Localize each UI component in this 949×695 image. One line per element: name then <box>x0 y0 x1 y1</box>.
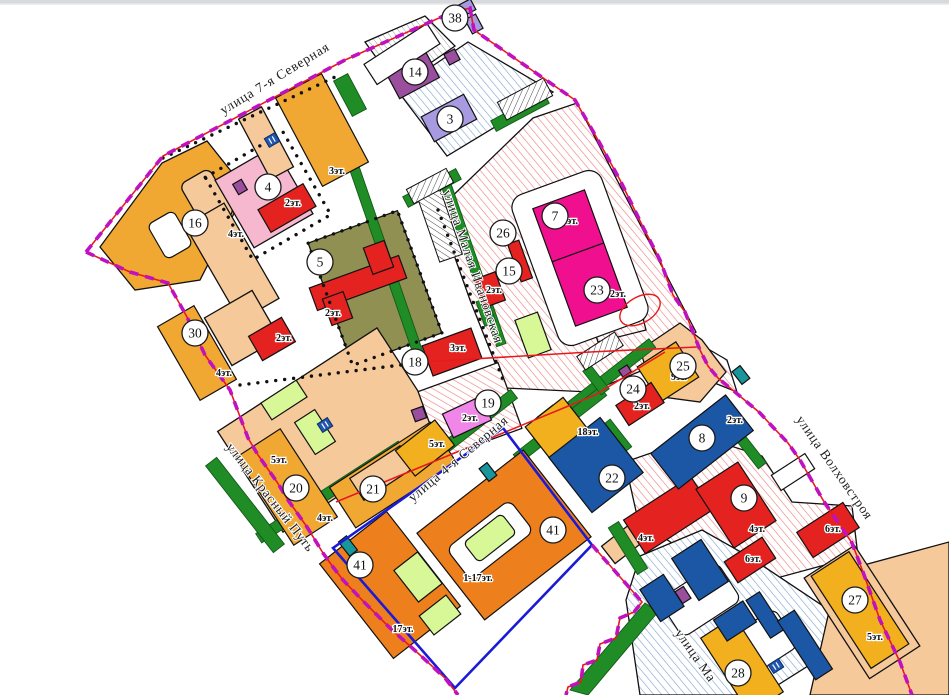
svg-text:38: 38 <box>448 11 462 26</box>
svg-text:41: 41 <box>353 558 367 573</box>
building-marker[interactable]: 23 <box>584 277 610 303</box>
building-marker[interactable]: 20 <box>283 475 309 501</box>
svg-text:24: 24 <box>626 382 640 397</box>
building-white-slab <box>771 454 814 491</box>
svg-text:26: 26 <box>496 226 510 241</box>
building-marker[interactable]: 27 <box>842 587 868 613</box>
building-marker[interactable]: 21 <box>360 476 386 502</box>
floor-count-label: 17эт. <box>393 624 414 635</box>
floor-count-label: 3эт. <box>450 343 466 354</box>
svg-text:18: 18 <box>408 355 422 370</box>
svg-text:21: 21 <box>366 482 380 497</box>
floor-count-label: 2эт. <box>325 308 341 319</box>
building-marker[interactable]: 28 <box>725 660 751 686</box>
top-edge <box>0 0 949 5</box>
building-marker[interactable]: 8 <box>689 425 715 451</box>
floor-count-label: 5эт. <box>867 632 883 643</box>
svg-text:27: 27 <box>848 593 862 608</box>
floor-count-label: 2эт. <box>727 415 743 426</box>
building-marker[interactable]: 9 <box>731 485 757 511</box>
floor-count-label: 2эт. <box>462 413 478 424</box>
building-marker[interactable]: 4 <box>255 174 281 200</box>
svg-text:3: 3 <box>447 112 454 127</box>
building-marker[interactable]: 22 <box>599 465 625 491</box>
building-marker[interactable]: 38 <box>442 5 468 31</box>
svg-text:8: 8 <box>699 431 706 446</box>
svg-text:16: 16 <box>188 216 202 231</box>
floor-count-label: 1-17эт. <box>463 573 493 584</box>
building-teal <box>732 366 750 385</box>
urban-plan-map: 3эт.2эт.4эт.2эт.2эт.4эт.2эт.2эт.2эт.3эт.… <box>0 0 949 695</box>
floor-count-label: 4эт. <box>317 513 333 524</box>
map-canvas: 3эт.2эт.4эт.2эт.2эт.4эт.2эт.2эт.2эт.3эт.… <box>0 0 949 695</box>
building-marker[interactable]: 16 <box>182 210 208 236</box>
building-marker[interactable]: 3 <box>437 106 463 132</box>
floor-count-label: 5эт. <box>271 455 287 466</box>
floor-count-label: 2эт. <box>276 333 292 344</box>
building-marker[interactable]: 41 <box>540 517 566 543</box>
building-marker[interactable]: 5 <box>307 249 333 275</box>
svg-text:20: 20 <box>289 481 303 496</box>
floor-count-label: 2эт. <box>285 198 301 209</box>
floor-count-label: 18эт. <box>578 427 599 438</box>
floor-count-label: 3эт. <box>329 166 345 177</box>
floor-count-label: 4эт. <box>638 533 654 544</box>
svg-text:14: 14 <box>408 65 422 80</box>
floor-count-label: 4эт. <box>216 368 232 379</box>
svg-text:4: 4 <box>265 180 272 195</box>
floor-count-label: 2эт. <box>634 401 650 412</box>
svg-text:7: 7 <box>552 209 559 224</box>
floor-count-label: 2эт. <box>610 289 626 300</box>
floor-count-label: 6эт. <box>825 524 841 535</box>
floor-count-label: 4эт. <box>228 229 244 240</box>
floor-count-label: 6эт. <box>745 554 761 565</box>
svg-text:22: 22 <box>605 471 619 486</box>
svg-text:23: 23 <box>590 283 604 298</box>
building-marker[interactable]: 24 <box>620 376 646 402</box>
svg-text:19: 19 <box>481 396 495 411</box>
building-marker[interactable]: 15 <box>496 258 522 284</box>
building-marker[interactable]: 7 <box>542 203 568 229</box>
svg-text:15: 15 <box>502 264 516 279</box>
svg-text:25: 25 <box>676 359 690 374</box>
svg-text:28: 28 <box>731 666 745 681</box>
building-marker[interactable]: 18 <box>402 349 428 375</box>
svg-text:30: 30 <box>188 326 202 341</box>
svg-text:41: 41 <box>546 523 560 538</box>
svg-text:5: 5 <box>317 255 324 270</box>
floor-count-label: 4эт. <box>749 524 765 535</box>
svg-text:9: 9 <box>741 491 748 506</box>
building-marker[interactable]: 19 <box>475 390 501 416</box>
building-marker[interactable]: 25 <box>670 353 696 379</box>
building-marker[interactable]: 26 <box>490 220 516 246</box>
building-marker[interactable]: 14 <box>402 59 428 85</box>
building-marker[interactable]: 41 <box>347 552 373 578</box>
floor-count-label: 5эт. <box>429 439 445 450</box>
building-marker[interactable]: 30 <box>182 320 208 346</box>
